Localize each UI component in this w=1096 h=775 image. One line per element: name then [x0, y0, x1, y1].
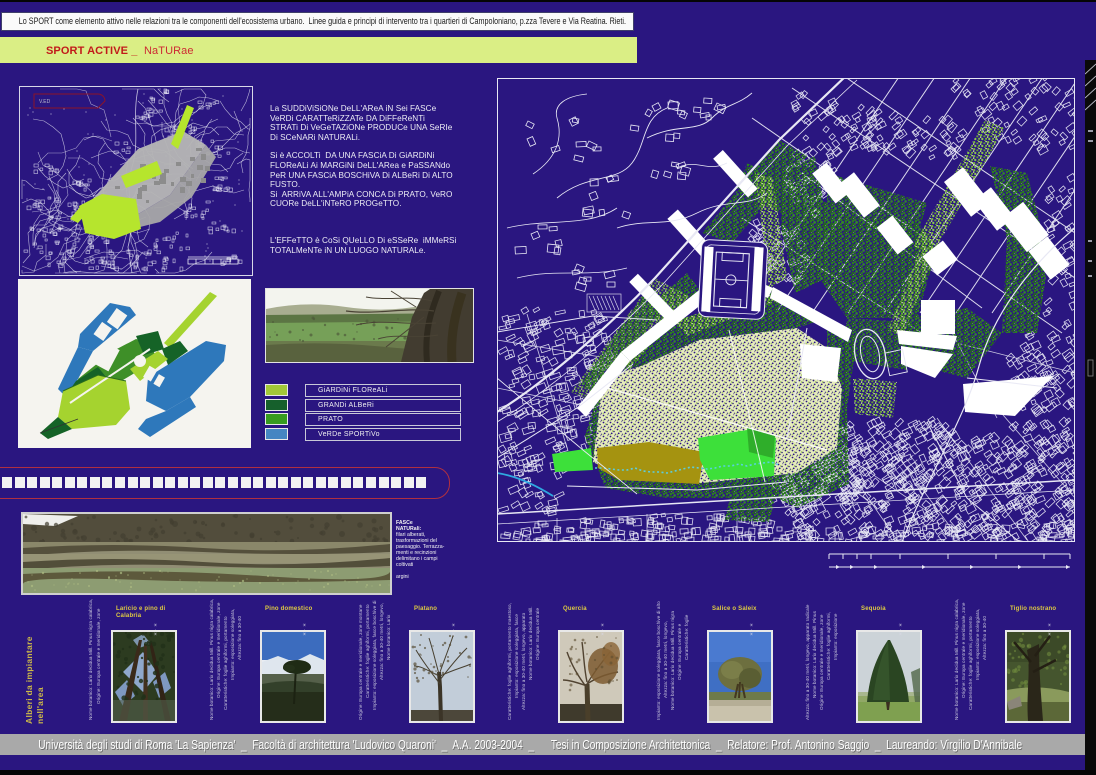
svg-text:V.ED: V.ED	[39, 99, 51, 105]
